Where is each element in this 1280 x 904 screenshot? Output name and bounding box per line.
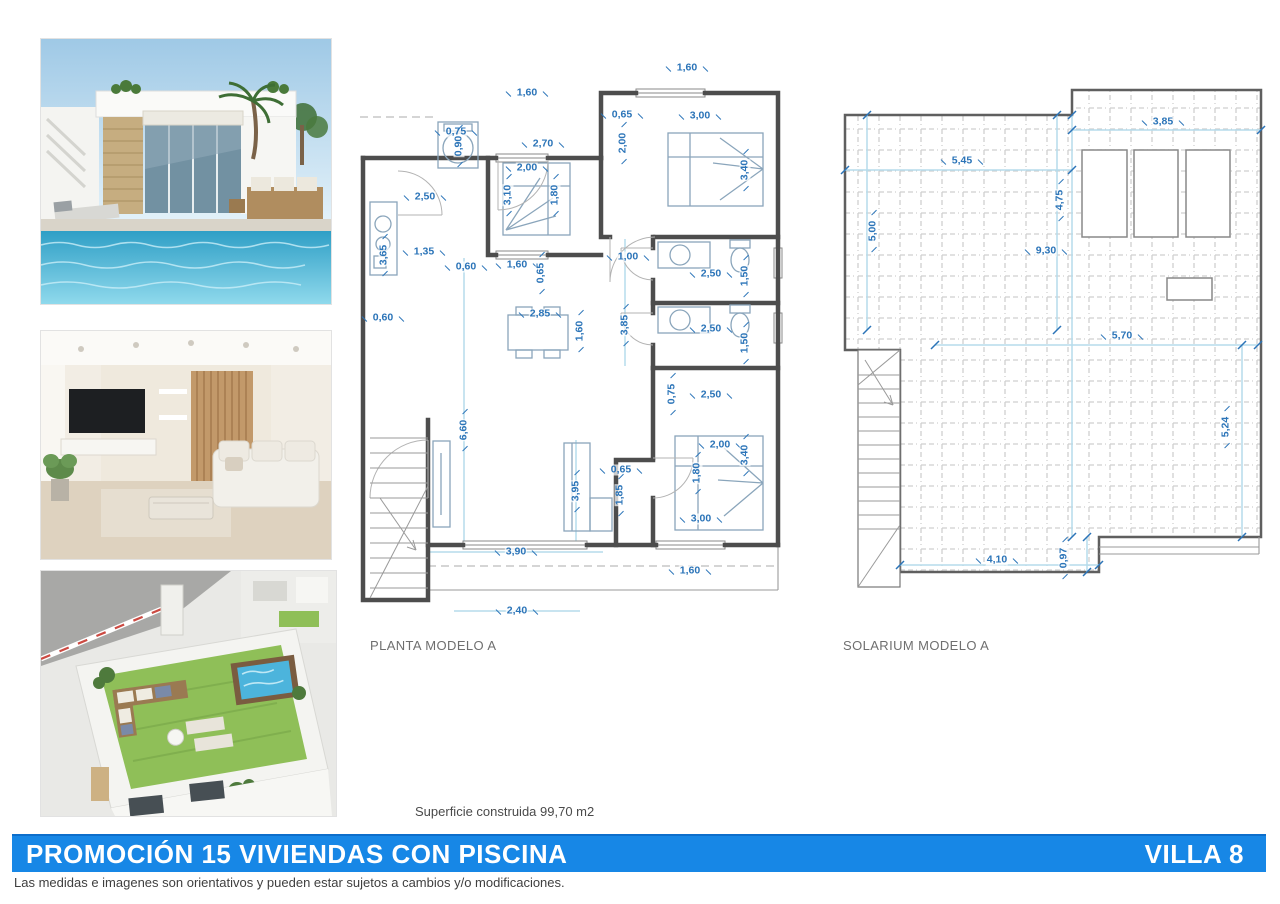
photo-rooftop-solarium — [40, 570, 337, 817]
jacuzzi — [231, 655, 300, 705]
dimension-label: 0,60 — [455, 261, 477, 272]
dimension-label: 2,00 — [516, 162, 538, 173]
dimension-label: 2,00 — [709, 439, 731, 450]
promo-banner: PROMOCIÓN 15 VIVIENDAS CON PISCINA VILLA… — [12, 834, 1266, 872]
sofa — [213, 441, 319, 507]
dimension-label: 1,00 — [617, 251, 639, 262]
photo-villa-exterior — [40, 38, 332, 305]
dimension-label: 1,80 — [691, 462, 702, 484]
promo-title: PROMOCIÓN 15 VIVIENDAS CON PISCINA — [26, 839, 567, 870]
dimension-label: 4,75 — [1054, 189, 1065, 211]
dimension-label: 3,40 — [739, 444, 750, 466]
dimension-label: 5,70 — [1111, 330, 1133, 341]
disclaimer-text: Las medidas e imagenes son orientativos … — [14, 875, 565, 890]
dimension-label: 2,70 — [532, 138, 554, 149]
dimension-label: 3,85 — [619, 314, 630, 336]
dimension-label: 0,65 — [535, 262, 546, 284]
dimension-label: 5,24 — [1220, 416, 1231, 438]
planta-dimension-layer: 1,601,600,750,902,702,003,101,803,400,65… — [358, 58, 793, 658]
floor-plan-solarium: 3,855,455,004,759,305,705,244,100,97 — [835, 85, 1267, 645]
coffee-table — [149, 497, 213, 519]
living-room-illustration — [41, 331, 331, 559]
dimension-label: 0,65 — [611, 109, 633, 120]
dimension-label: 2,50 — [700, 323, 722, 334]
dimension-label: 1,60 — [506, 259, 528, 270]
dimension-label: 1,60 — [679, 565, 701, 576]
chimney — [161, 585, 183, 635]
dimension-label: 1,85 — [614, 484, 625, 506]
dimension-label: 3,90 — [505, 546, 527, 557]
planta-plan-label: PLANTA MODELO A — [370, 638, 496, 653]
dimension-label: 1,50 — [739, 332, 750, 354]
dimension-label: 1,35 — [413, 246, 435, 257]
dimension-label: 1,60 — [574, 320, 585, 342]
solarium-plan-label: SOLARIUM MODELO A — [843, 638, 989, 653]
dimension-label: 2,40 — [506, 605, 528, 616]
dimension-label: 3,00 — [690, 513, 712, 524]
dimension-label: 1,60 — [676, 62, 698, 73]
dimension-label: 1,50 — [739, 265, 750, 287]
dimension-label: 3,40 — [739, 159, 750, 181]
dimension-label: 1,60 — [516, 87, 538, 98]
tv-screen — [69, 389, 145, 433]
dimension-label: 2,00 — [617, 132, 628, 154]
tv-console — [61, 439, 156, 455]
dimension-label: 4,10 — [986, 554, 1008, 565]
villa-exterior-illustration — [41, 39, 331, 304]
built-surface-note: Superficie construida 99,70 m2 — [415, 804, 594, 819]
dimension-label: 3,00 — [689, 110, 711, 121]
dimension-label: 3,85 — [1152, 116, 1174, 127]
dimension-label: 5,00 — [867, 220, 878, 242]
floor-plan-planta: 1,601,600,750,902,702,003,101,803,400,65… — [358, 58, 793, 658]
dimension-label: 9,30 — [1035, 245, 1057, 256]
dimension-label: 5,45 — [951, 155, 973, 166]
dimension-label: 0,97 — [1058, 547, 1069, 569]
dimension-label: 1,80 — [549, 184, 560, 206]
dimension-label: 0,65 — [610, 464, 632, 475]
rooftop-illustration — [41, 571, 336, 816]
dimension-label: 2,85 — [529, 308, 551, 319]
dimension-label: 3,65 — [378, 244, 389, 266]
dimension-label: 2,50 — [700, 268, 722, 279]
dimension-label: 6,60 — [458, 419, 469, 441]
dimension-label: 0,75 — [666, 383, 677, 405]
dimension-label: 3,95 — [570, 480, 581, 502]
stone-accent — [91, 767, 109, 801]
solarium-dimension-layer: 3,855,455,004,759,305,705,244,100,97 — [835, 85, 1267, 645]
photo-living-room — [40, 330, 332, 560]
dimension-label: 0,90 — [453, 135, 464, 157]
dimension-label: 3,10 — [502, 184, 513, 206]
dimension-label: 2,50 — [414, 191, 436, 202]
dimension-label: 0,60 — [372, 312, 394, 323]
villa-label: VILLA 8 — [1145, 839, 1244, 870]
dimension-label: 2,50 — [700, 389, 722, 400]
awning — [143, 111, 243, 125]
